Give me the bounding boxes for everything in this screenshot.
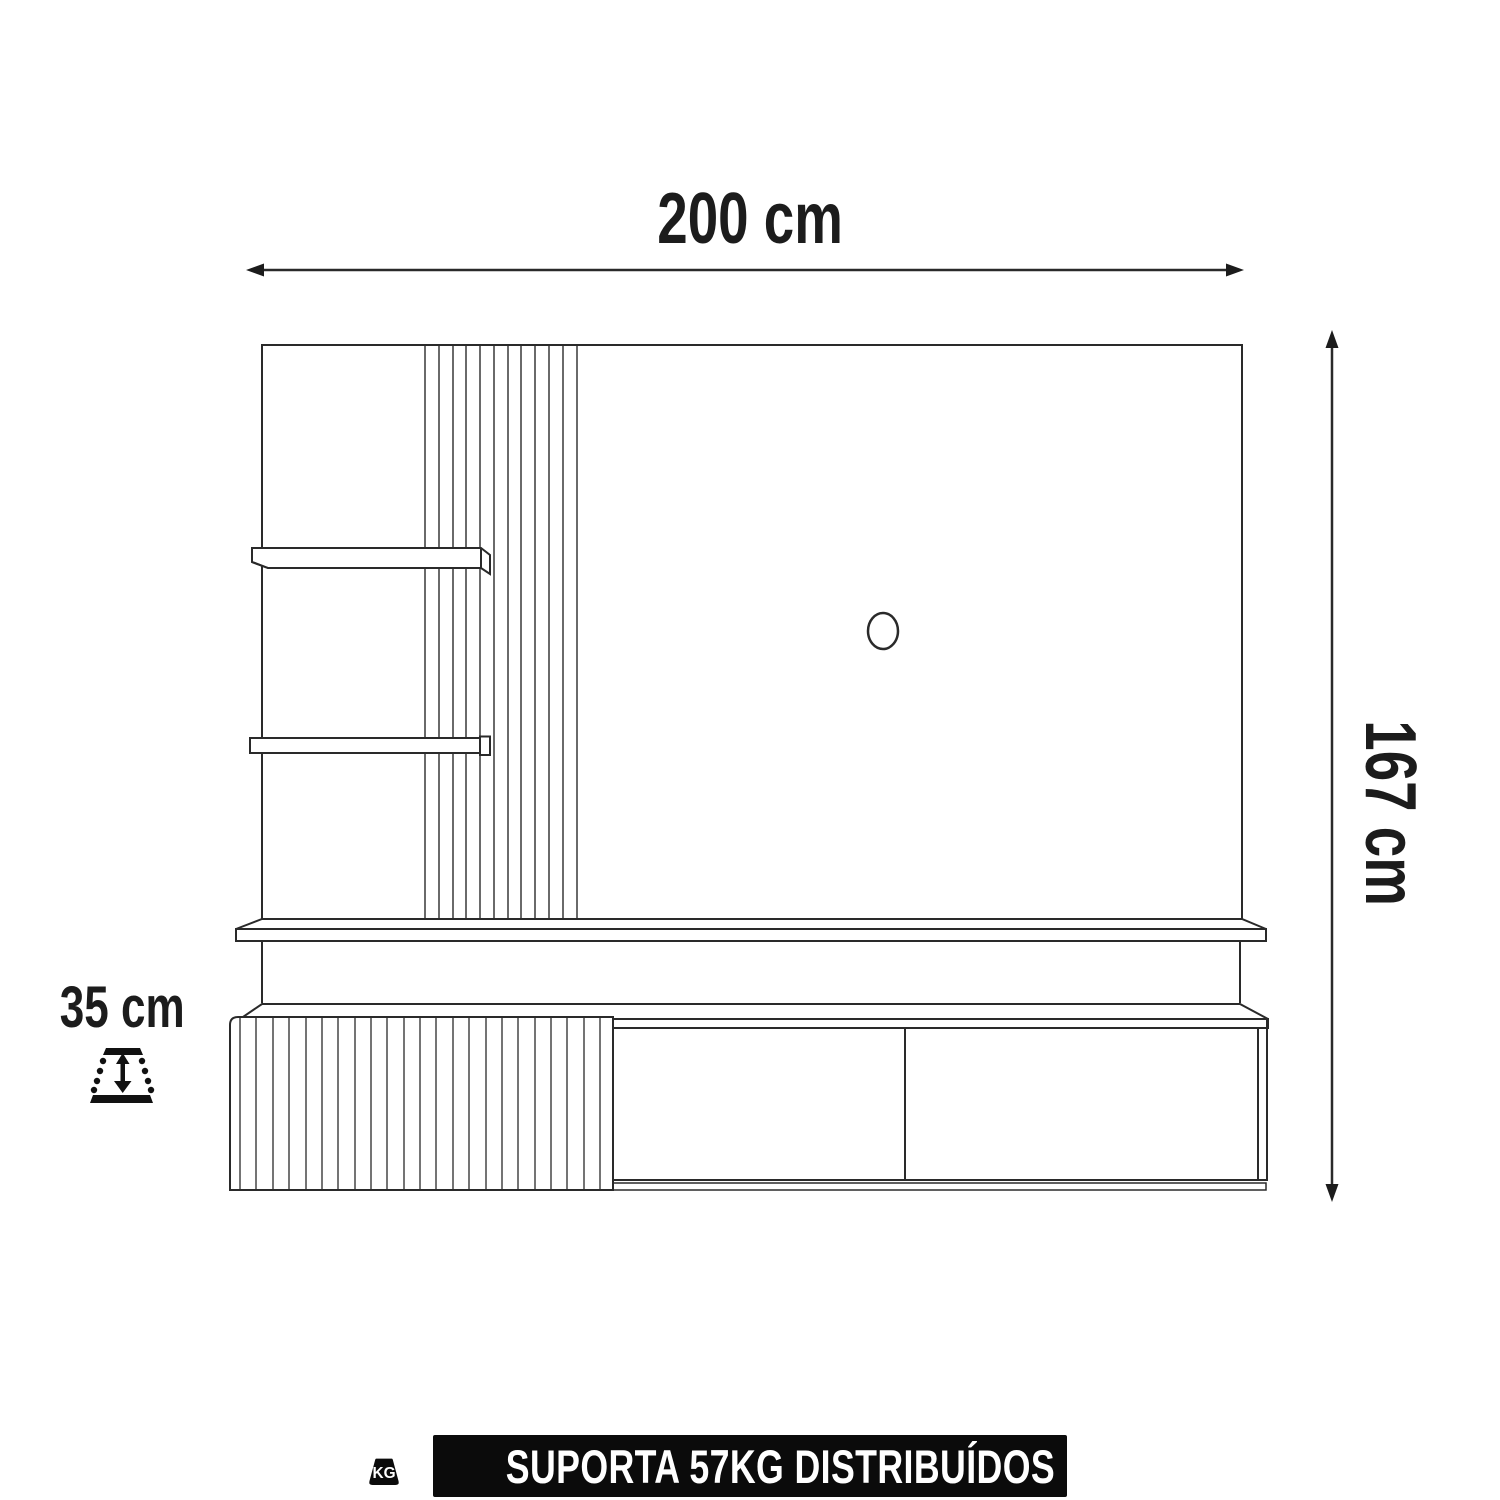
weight-support-banner: KG SUPORTA 57KG DISTRIBUÍDOS (433, 1435, 1067, 1497)
depth-adjust-icon (90, 1048, 154, 1103)
weight-support-text: SUPORTA 57KG DISTRIBUÍDOS (505, 1439, 1054, 1494)
height-dimension-text: 167 cm (1359, 720, 1421, 906)
panel-outline (262, 345, 1242, 920)
width-dimension-text: 200 cm (657, 186, 843, 252)
stand-slat-door (230, 1017, 613, 1190)
stand-cabinet (613, 1019, 1267, 1190)
depth-dimension-label: 35 cm (12, 981, 232, 1035)
depth-dimension-text: 35 cm (60, 981, 185, 1035)
height-dimension-label: 167 cm (1359, 663, 1421, 963)
shelf-bottom (250, 737, 490, 756)
kg-weight-icon-text: KG (372, 1465, 395, 1482)
width-dimension-label: 200 cm (495, 186, 1005, 252)
height-dimension-arrow (1326, 330, 1339, 1202)
width-dimension-arrow (246, 264, 1244, 277)
kg-weight-icon: KG (359, 1441, 409, 1491)
panel-base-ledge (236, 919, 1266, 941)
product-dimension-diagram: 200 cm 167 cm 35 cm KG SUPORTA 57KG DIST… (0, 0, 1500, 1500)
panel-lower-recess (262, 941, 1240, 1003)
